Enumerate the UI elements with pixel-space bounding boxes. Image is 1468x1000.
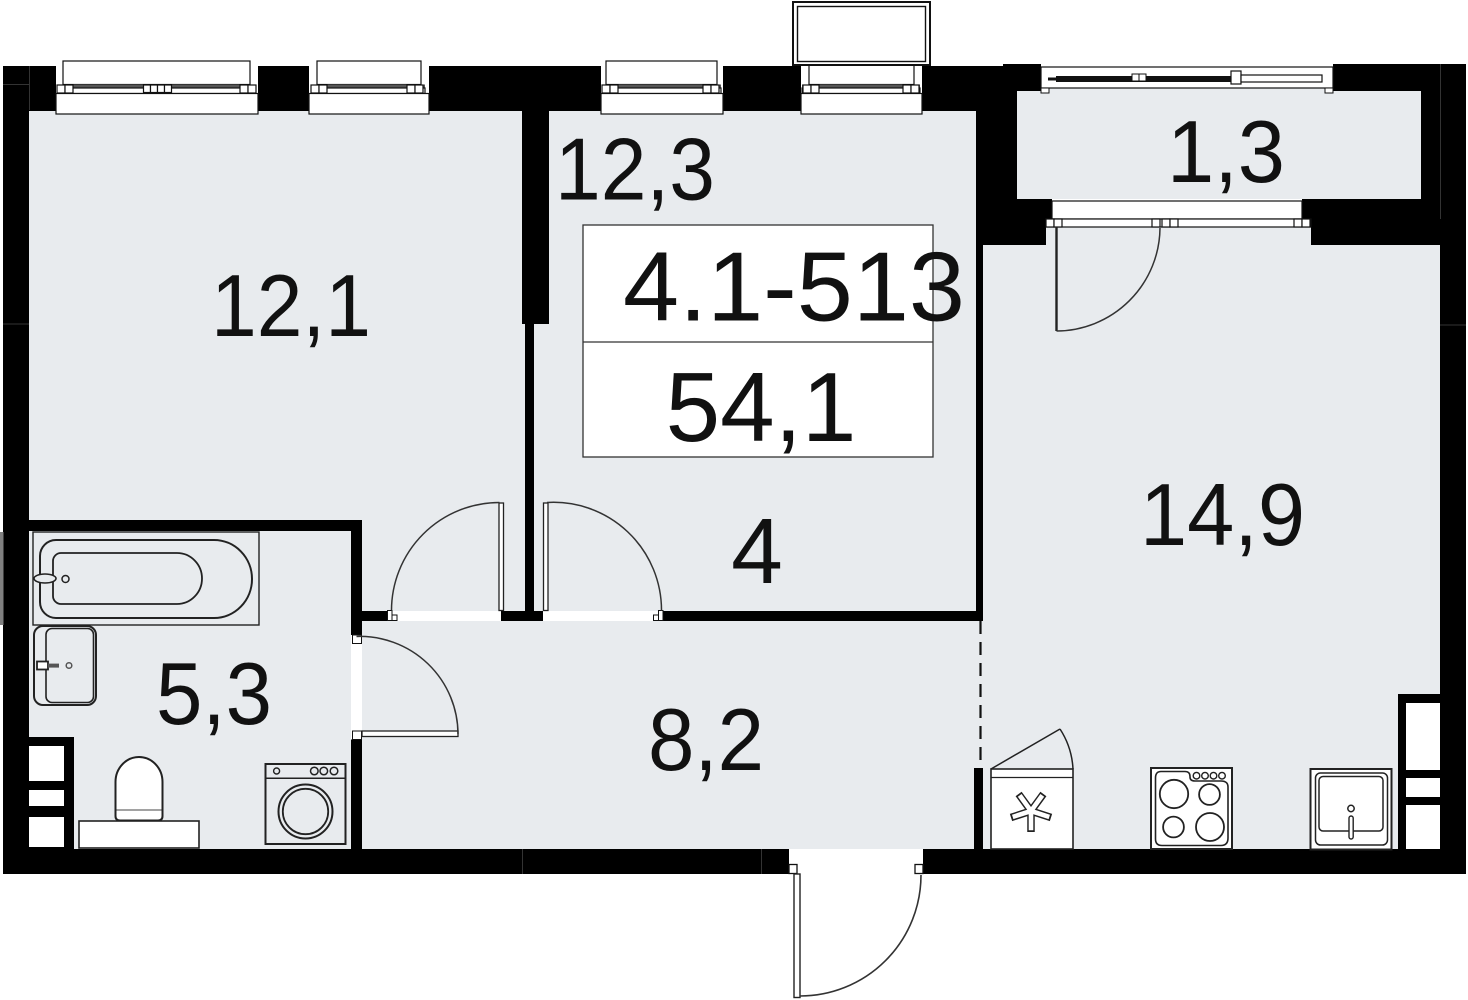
svg-text:5,3: 5,3 (156, 644, 272, 743)
svg-text:8,2: 8,2 (648, 690, 764, 789)
svg-text:54,1: 54,1 (666, 352, 857, 462)
svg-text:1,3: 1,3 (1167, 102, 1285, 201)
svg-text:4: 4 (731, 499, 783, 603)
svg-text:14,9: 14,9 (1140, 465, 1305, 564)
svg-text:12,3: 12,3 (555, 120, 715, 219)
svg-text:12,1: 12,1 (211, 256, 371, 355)
svg-text:4.1-513: 4.1-513 (623, 232, 965, 342)
